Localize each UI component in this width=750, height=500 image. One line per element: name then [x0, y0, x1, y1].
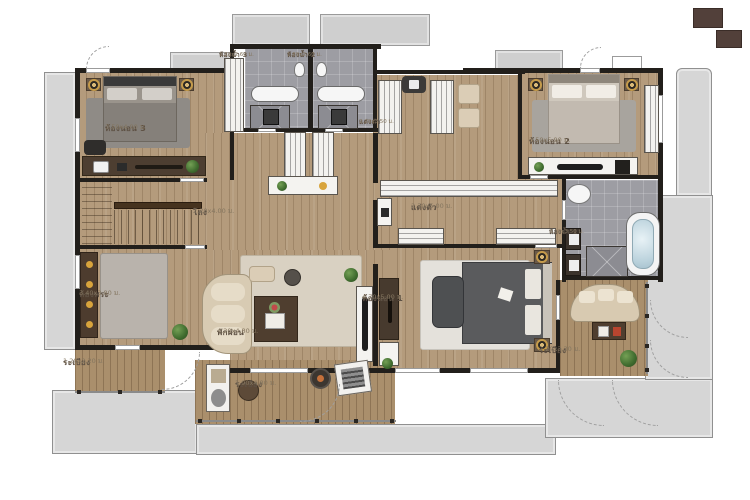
window-left-1 [75, 118, 80, 152]
shower-drain [331, 109, 347, 125]
wardrobe-row [496, 228, 556, 245]
tv-icon [557, 164, 603, 170]
hall-console [268, 176, 338, 195]
lamp-icon [181, 79, 193, 91]
toilet-icon [294, 62, 305, 77]
door-arc [86, 46, 109, 69]
tv-icon [362, 297, 368, 351]
door-balcony-left [115, 345, 140, 350]
railing-post [158, 390, 162, 394]
sofa-curved [202, 274, 252, 354]
sink-counter [251, 86, 299, 102]
tv-panel-living [356, 286, 373, 362]
bed-blanket [549, 101, 619, 143]
coffee-table [254, 296, 298, 342]
bed-pillow [525, 305, 541, 335]
planter-top-right-1 [693, 8, 723, 28]
wardrobe [312, 132, 334, 180]
chair-cushion [211, 389, 226, 407]
deck-bottom-center [196, 424, 556, 455]
bed-headboard [104, 77, 176, 86]
wardrobe-row [398, 228, 444, 245]
round-stool [284, 269, 301, 286]
wardrobe [284, 132, 306, 180]
round-table [238, 380, 259, 401]
bed-pillow [552, 85, 582, 98]
window-bedroom1-bottom-2 [470, 368, 528, 373]
altar-gold-item [86, 261, 93, 268]
bedroom-1-bed [462, 262, 552, 344]
railing-post [645, 314, 649, 318]
desk-chair [84, 140, 106, 155]
balcony-left-floor [75, 348, 165, 393]
vanity-sink [565, 228, 581, 250]
wall-bath3-bath2-divider [308, 48, 313, 132]
table-books [265, 313, 285, 329]
sofa-cushion [211, 327, 245, 345]
bedroom-1-console [379, 278, 399, 340]
desk-item [381, 208, 389, 217]
door-bedroom2-top [580, 68, 600, 73]
wall-bedroom2-top [463, 68, 663, 73]
outdoor-table [592, 322, 626, 340]
stair-treads [114, 210, 202, 244]
sofa-cushion [598, 289, 614, 301]
wall-family-bedroom1 [373, 264, 378, 366]
walkin-desk [377, 198, 392, 226]
sink-counter [317, 86, 365, 102]
railing-post [237, 419, 241, 423]
stair-railing [114, 202, 202, 209]
lamp-icon [530, 79, 542, 91]
altar-gold-item [86, 321, 93, 328]
floor-plan: ห้องนอน 3 3.50x4.00 ม. ห้องน้ำ 3 1.20x2.… [0, 0, 750, 500]
bedroom-2-bed [548, 74, 620, 144]
sofa-cushion [579, 291, 595, 303]
vanity-sink [565, 254, 581, 276]
railing-balcony-right [646, 282, 648, 374]
outdoor-armchair [334, 360, 372, 396]
plant-icon [344, 268, 358, 282]
plant-icon [382, 358, 393, 369]
bed-pillow [525, 269, 541, 299]
door-bathroom1 [562, 200, 566, 220]
ottoman [458, 108, 480, 128]
flower-vase [269, 302, 280, 313]
deck-left [44, 72, 76, 350]
table-decor [613, 327, 621, 336]
railing-post [118, 390, 122, 394]
altar-gold-item [86, 281, 93, 288]
plant-icon [620, 350, 637, 367]
wardrobe [644, 85, 659, 153]
bed-pillow [142, 88, 172, 100]
fireplace-box [615, 160, 630, 174]
bed-blanket [104, 103, 176, 141]
railing-post [645, 344, 649, 348]
window-family-bottom-1 [250, 368, 308, 373]
ottoman [458, 84, 480, 104]
bed-headboard [549, 75, 619, 83]
stair-upper-flight [82, 186, 112, 244]
prayer-altar [80, 252, 98, 338]
lounge-chair [206, 364, 230, 412]
door-bedroom3 [180, 178, 204, 182]
lamp-icon [626, 79, 638, 91]
laptop-icon [93, 161, 109, 173]
fire-icon [317, 375, 324, 382]
wall-bathroom2-right [373, 48, 377, 132]
railing-post [645, 284, 649, 288]
sofa-cushion [211, 305, 245, 323]
window-bedroom1-bottom-1 [395, 368, 440, 373]
roof-top-1 [232, 14, 310, 46]
wardrobe-row [380, 180, 558, 197]
wardrobe [378, 80, 402, 134]
roof-top-2 [320, 14, 430, 46]
plant-icon [186, 160, 199, 173]
wardrobe [224, 58, 244, 132]
staircase [82, 186, 203, 246]
basin [569, 260, 579, 271]
pouf [249, 266, 275, 282]
bed-pillow [107, 88, 137, 100]
toilet-icon [567, 184, 591, 204]
bathtub-icon [626, 212, 660, 276]
vanity-item [409, 80, 419, 89]
bed-headboard [543, 263, 552, 343]
railing-post [390, 419, 394, 423]
lamp-icon [88, 79, 100, 91]
shower-drain [263, 109, 279, 125]
altar-gold-item [86, 301, 93, 308]
console-handle [388, 297, 392, 323]
basin [569, 234, 579, 245]
wall-bedroom2-left [518, 72, 522, 178]
plant-icon [277, 181, 287, 191]
railing-post [276, 419, 280, 423]
sofa-cushion [211, 283, 245, 301]
railing-post [198, 419, 202, 423]
door-balcony-right [556, 295, 560, 320]
chair-cushion [211, 369, 226, 383]
bedroom-3-bed [103, 76, 177, 142]
wall-hall-right [373, 133, 378, 183]
bed-pillow [586, 85, 616, 98]
vanity-chair [402, 76, 426, 93]
prayer-rug [100, 253, 168, 339]
deck-bottom-left [52, 390, 198, 454]
table-tray [598, 326, 609, 337]
wall-bathrooms-top [233, 44, 381, 49]
shower [586, 246, 628, 277]
lamp-icon [536, 339, 548, 351]
plant-icon [172, 324, 188, 340]
toilet-icon [316, 62, 327, 77]
bed-paper [498, 287, 514, 301]
shower [250, 105, 290, 129]
railing-post [315, 419, 319, 423]
railing-post [77, 390, 81, 394]
sofa-cushion [617, 291, 633, 303]
wardrobe [430, 80, 454, 134]
bedroom-2-tv-counter [528, 157, 638, 175]
railing-balcony-center [196, 420, 396, 422]
decor-gold [319, 182, 327, 190]
wall-bedroom1-right [556, 280, 560, 372]
desk-tray [135, 165, 183, 169]
lamp-icon [536, 251, 548, 263]
planter-top-right-2 [716, 30, 742, 48]
door-arc [580, 47, 601, 68]
railing-post [645, 368, 649, 372]
deck-right-top [676, 68, 712, 196]
bathtub-water [632, 219, 654, 269]
railing-post [354, 419, 358, 423]
chair-cushion [341, 367, 366, 390]
door-bedroom2-bath [530, 175, 548, 179]
shower [318, 105, 358, 129]
bedroom-armchair [432, 276, 464, 328]
plant-icon [534, 162, 544, 172]
desk-item [117, 163, 127, 171]
